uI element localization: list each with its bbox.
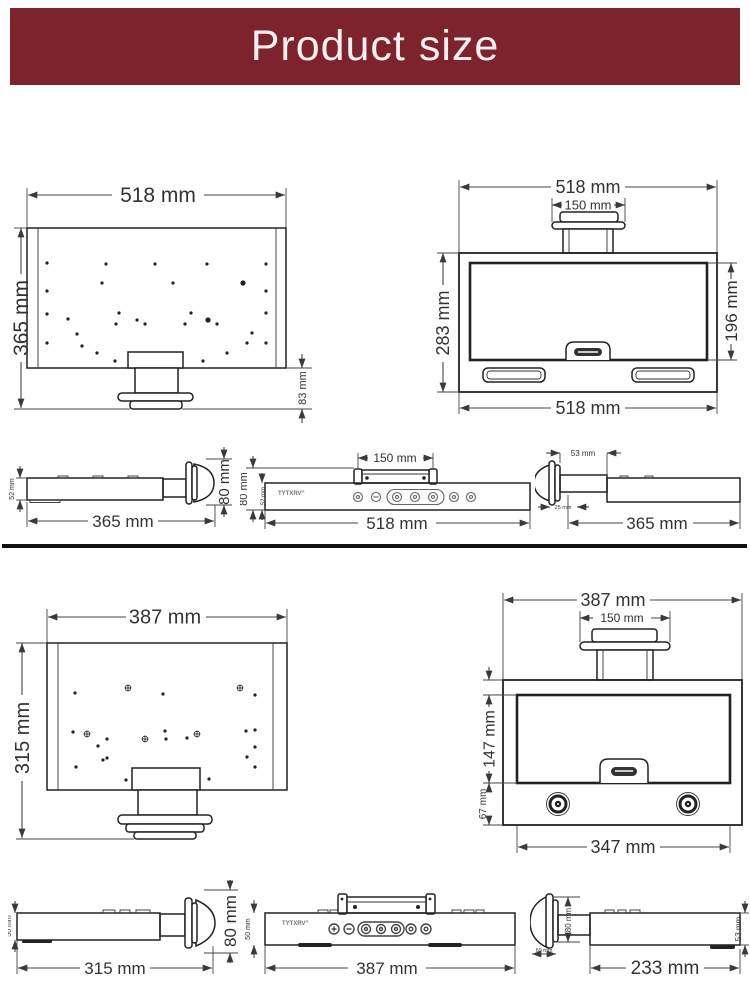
dim-a-back-width: 518 mm [120,184,196,207]
page-title: Product size [251,22,500,71]
dim-a-top-mount: 150 mm [373,451,416,465]
mount-side [535,461,560,505]
dim-b-back-height: 315 mm [12,702,34,774]
unit-a-side-left-view: 80 mm 52 mm 365 mm [8,445,240,540]
dim-a-back-mount: 83 mm [297,371,309,405]
unit-a-side-right-view: 53 mm 25 mm 365 mm [535,445,750,540]
unit-b-back-view: 387 mm 315 mm [8,595,340,857]
dim-b-sider-body: 53 mm [734,916,743,941]
dim-b-sider-length: 233 mm [631,958,700,979]
dim-a-top-body: 52 mm [261,487,267,505]
mount-plate [354,469,437,484]
dim-b-top-body: 50 mm [245,918,252,940]
dim-a-sidel-body: 52 mm [9,478,16,500]
dim-b-top-length: 387 mm [356,959,417,978]
dim-a-sidel-length: 365 mm [92,512,153,531]
unit-a-back-view: 518 mm 365 mm 83 mm [8,168,340,426]
dim-a-top-depth: 80 mm [240,472,250,506]
dim-a-sider-length: 365 mm [626,514,687,533]
back-panel [27,228,286,368]
speakers [547,793,700,816]
body-side [607,478,740,502]
body-bottom [265,913,515,945]
dim-a-front-width-bottom: 518 mm [555,398,620,418]
dim-b-front-base: 67 mm [478,789,489,820]
unit-a-front-view: 518 mm 150 mm 283 mm 196 m [425,168,747,420]
housing [503,680,742,825]
ceiling-mount [552,212,625,253]
ceiling-mount [580,629,670,680]
dim-a-front-height: 283 mm [433,290,453,355]
dim-b-front-door: 147 mm [482,710,499,768]
dim-a-sidel-mount: 80 mm [216,459,233,505]
mount-side [186,462,214,504]
dim-b-front-width-bottom: 347 mm [590,837,655,857]
dim-b-sidel-mount: 80 mm [221,895,240,947]
door-handle [600,759,648,783]
mount-plate [338,894,435,914]
product-size-sheet: Product size 518 mm 365 mm 83 mm [0,0,750,987]
body-side [27,478,163,500]
dim-b-front-width-top: 387 mm [580,590,645,610]
section-divider [2,544,747,548]
mount-side [530,894,558,948]
header-banner: Product size [10,8,740,85]
dim-b-sidel-length: 315 mm [84,959,145,978]
body-side [590,913,740,945]
dim-a-sider-neck: 53 mm [571,449,596,458]
dim-b-sider-mount: 80 mm [564,907,573,932]
unit-a-top-view: 150 mm TYTXRV® 80 mm 52 mm 5 [240,445,546,540]
dim-a-sider-flange: 25 mm [555,505,572,511]
unit-b-front-view: 387 mm 150 mm 147 mm [435,585,750,865]
speaker-slots [483,368,694,382]
dim-b-front-mount: 150 mm [600,611,643,625]
dim-b-sidel-body: 50 mm [8,915,13,937]
mount-side [185,898,215,948]
unit-b-side-right-view: 80 mm 53 mm 69 mm 233 mm [530,880,750,985]
dim-b-back-width: 387 mm [129,607,201,629]
dim-a-top-length: 518 mm [366,514,427,533]
control-buttons [329,922,431,936]
vent-holes [45,261,267,362]
unit-b-side-left-view: 80 mm 50 mm 315 mm [8,880,248,985]
body-side [17,913,160,940]
dim-b-sider-flange: 69 mm [536,948,553,954]
dim-a-front-mount: 150 mm [565,198,612,213]
unit-b-top-view: TYTXRV® 50 mm 387 mm [240,880,546,985]
brand-label: TYTXRV® [278,489,305,497]
dim-a-back-height: 365 mm [10,280,33,356]
body-bottom [265,483,530,510]
dim-a-front-door: 196 mm [722,280,741,341]
brand-label: TYTXRV® [282,919,309,927]
control-buttons [354,490,476,505]
dim-a-front-width-top: 518 mm [555,177,620,197]
mount-column [118,768,212,839]
door-handle [566,342,610,360]
mount-column [118,352,193,409]
